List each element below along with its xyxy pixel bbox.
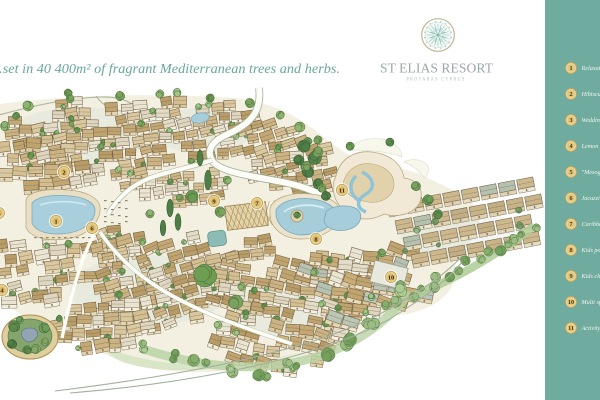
svg-text:10: 10 (388, 274, 395, 281)
svg-text:2: 2 (569, 91, 572, 98)
svg-text:9: 9 (569, 273, 572, 280)
svg-text:Kids club: Kids club (581, 273, 600, 280)
svg-text:7: 7 (569, 221, 572, 228)
svg-text:Relaxation pool: Relaxation pool (581, 65, 600, 72)
svg-text:Caribbean pool: Caribbean pool (582, 221, 600, 228)
svg-text:...set in 40 400m² of fragrant: ...set in 40 400m² of fragrant Mediterra… (0, 61, 340, 76)
svg-text:1: 1 (54, 218, 57, 225)
svg-text:3: 3 (569, 117, 572, 124)
svg-text:Wedding gazebo: Wedding gazebo (582, 117, 600, 124)
svg-text:ST ELIAS RESORT: ST ELIAS RESORT (380, 61, 494, 76)
svg-text:PROTARAS CYPRUS: PROTARAS CYPRUS (407, 78, 466, 83)
svg-text:Kids pool: Kids pool (581, 247, 600, 254)
svg-text:10: 10 (568, 299, 574, 306)
svg-text:1: 1 (569, 65, 572, 72)
svg-text:Jacuzzi: Jacuzzi (582, 195, 600, 202)
svg-text:Hibiscus pool bar: Hibiscus pool bar (581, 91, 600, 98)
svg-text:5: 5 (569, 169, 572, 176)
svg-text:11: 11 (568, 325, 574, 332)
svg-text:Multi sports court: Multi sports court (581, 299, 600, 306)
svg-text:Lemon tree garden: Lemon tree garden (581, 143, 600, 150)
svg-text:4: 4 (569, 143, 572, 150)
svg-text:6: 6 (569, 195, 572, 202)
svg-text:11: 11 (339, 187, 345, 194)
svg-text:Activity pool: Activity pool (581, 325, 600, 332)
svg-text:8: 8 (569, 247, 572, 254)
svg-text:"Mesogios" restaurant: "Mesogios" restaurant (582, 169, 600, 176)
